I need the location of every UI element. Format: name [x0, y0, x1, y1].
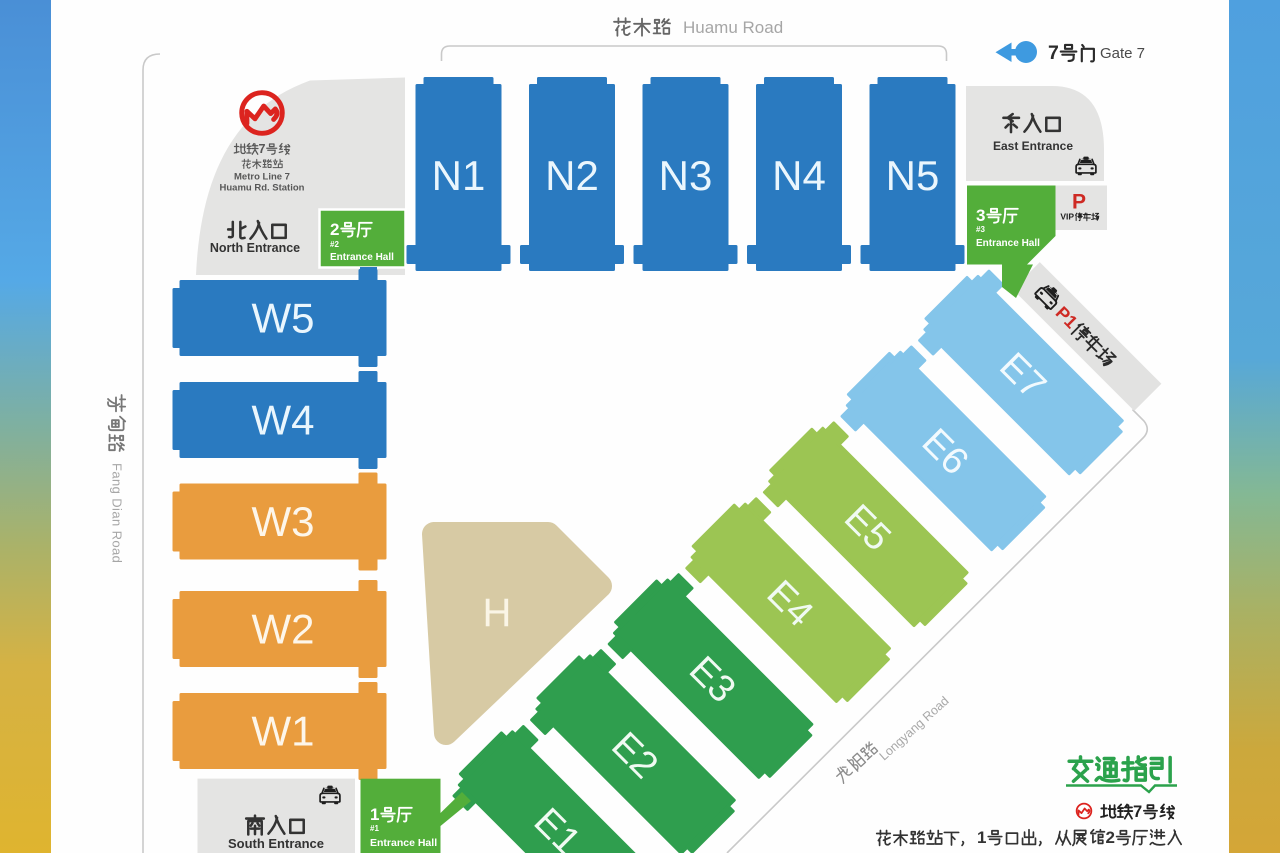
svg-text:W1: W1 — [252, 708, 315, 755]
svg-text:Gate 7: Gate 7 — [1100, 45, 1145, 62]
svg-text:#1: #1 — [370, 824, 379, 833]
svg-text:Huamu Road: Huamu Road — [683, 18, 783, 37]
svg-text:Entrance Hall: Entrance Hall — [976, 238, 1040, 249]
svg-text:W3: W3 — [252, 498, 315, 545]
svg-text:VIP: VIP — [1060, 212, 1074, 222]
svg-text:N2: N2 — [545, 152, 599, 199]
svg-text:2: 2 — [1106, 828, 1115, 847]
svg-text:P: P — [1072, 191, 1086, 214]
svg-text:North Entrance: North Entrance — [210, 241, 300, 255]
svg-text:2: 2 — [330, 220, 339, 239]
svg-text:W5: W5 — [252, 295, 315, 342]
svg-text:#3: #3 — [976, 225, 985, 234]
svg-text:Entrance Hall: Entrance Hall — [330, 252, 394, 263]
svg-text:N3: N3 — [659, 152, 713, 199]
svg-text:Huamu Rd. Station: Huamu Rd. Station — [220, 183, 305, 194]
svg-text:East Entrance: East Entrance — [993, 139, 1073, 153]
svg-text:7: 7 — [1133, 803, 1142, 821]
svg-text:7: 7 — [259, 142, 266, 156]
svg-text:#2: #2 — [330, 240, 339, 249]
svg-text:Metro Line 7: Metro Line 7 — [234, 172, 290, 183]
svg-text:W2: W2 — [252, 606, 315, 653]
svg-text:H: H — [483, 591, 512, 635]
svg-text:N5: N5 — [886, 152, 940, 199]
svg-text:3: 3 — [976, 206, 985, 225]
svg-text:W4: W4 — [252, 397, 315, 444]
svg-text:1: 1 — [370, 805, 379, 824]
svg-text:1: 1 — [977, 828, 986, 847]
svg-text:7: 7 — [1048, 42, 1059, 64]
svg-text:South Entrance: South Entrance — [228, 836, 324, 851]
svg-text:Fang Dian Road: Fang Dian Road — [110, 463, 125, 563]
svg-text:Entrance Hall: Entrance Hall — [370, 837, 437, 849]
svg-text:N1: N1 — [432, 152, 486, 199]
svg-text:N4: N4 — [772, 152, 826, 199]
